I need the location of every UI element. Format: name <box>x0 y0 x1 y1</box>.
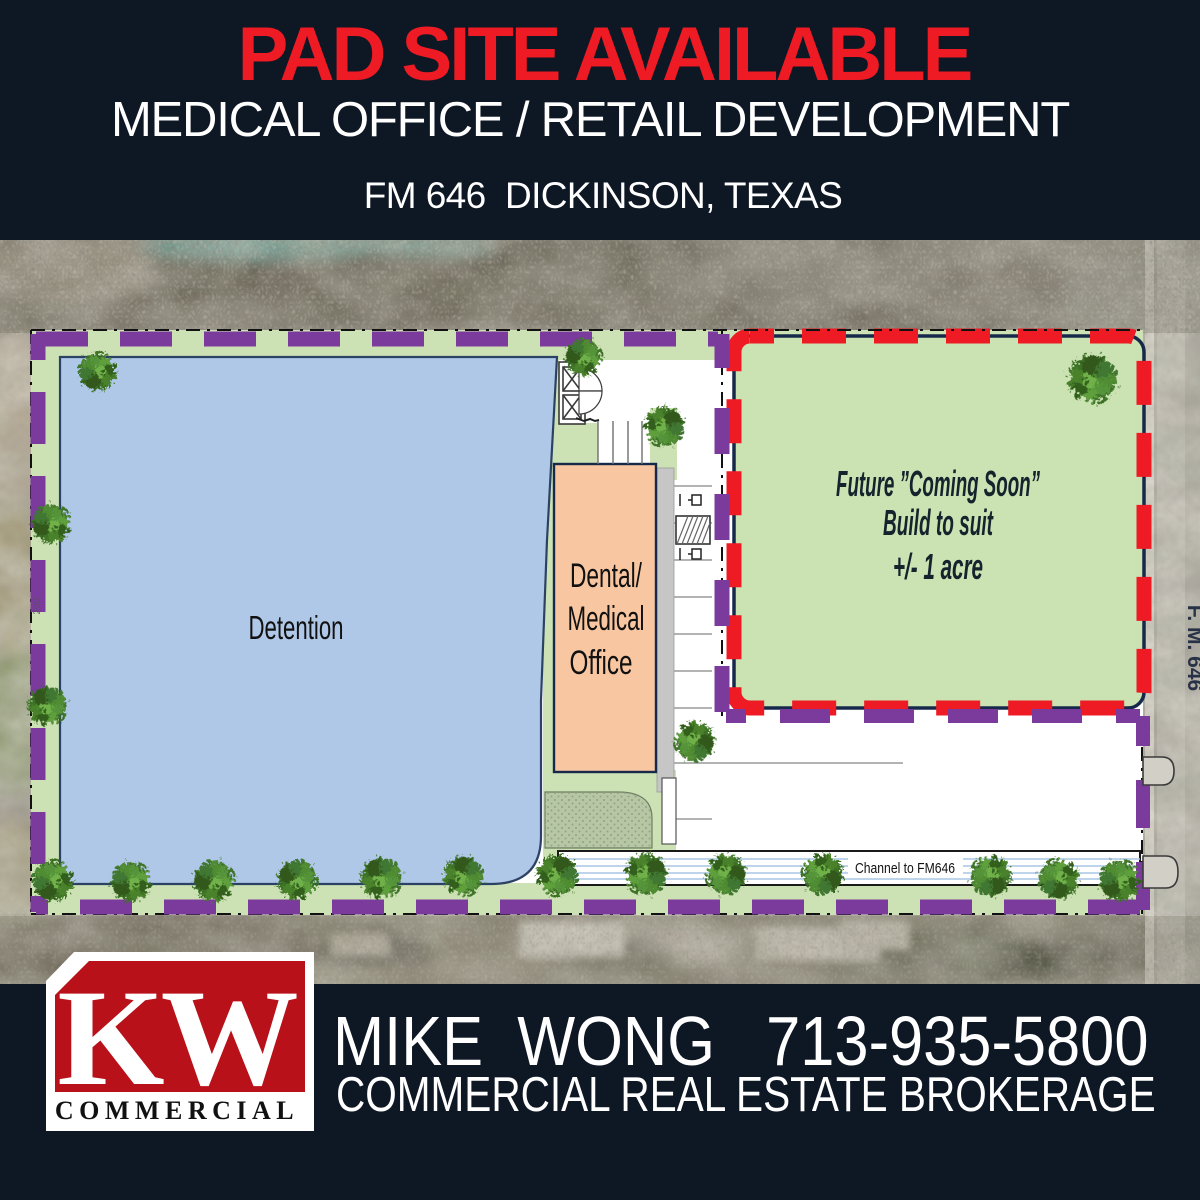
svg-text:COMMERCIAL: COMMERCIAL <box>55 1096 299 1125</box>
svg-text:F. M. 646: F. M. 646 <box>1183 605 1200 691</box>
svg-text:Medical: Medical <box>568 600 645 638</box>
svg-text:Build to suit: Build to suit <box>883 502 994 543</box>
svg-text:Dental/: Dental/ <box>570 557 642 595</box>
svg-text:+/- 1 acre: +/- 1 acre <box>893 546 983 587</box>
svg-text:200’: 200’ <box>32 596 43 615</box>
svg-text:Detention: Detention <box>249 609 344 646</box>
svg-text:Future ”Coming Soon”: Future ”Coming Soon” <box>836 463 1040 504</box>
svg-text:Channel to FM646: Channel to FM646 <box>855 860 955 877</box>
svg-text:KW: KW <box>57 961 296 1114</box>
svg-text:Office: Office <box>570 644 633 682</box>
